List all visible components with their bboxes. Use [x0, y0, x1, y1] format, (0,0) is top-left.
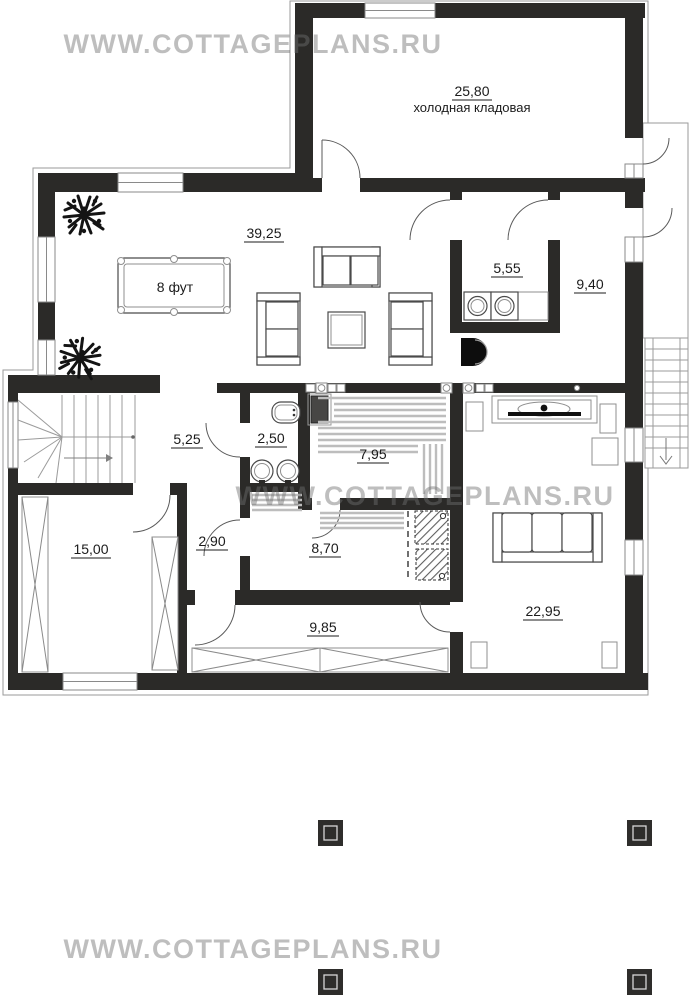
door-icon — [508, 200, 548, 240]
shower-tray — [416, 549, 448, 580]
window-icon — [365, 3, 435, 18]
sofa-left — [257, 293, 300, 365]
room-label-cold-storage-area: 25,80 — [454, 83, 489, 99]
room-label-laundry: 5,55 — [493, 260, 520, 276]
windows — [8, 3, 643, 690]
boiler-unit — [461, 338, 487, 366]
billiard-table-label: 8 фут — [157, 279, 194, 295]
room-label-corridor: 9,85 — [309, 619, 336, 635]
tv-console — [492, 396, 597, 423]
window-icon — [625, 237, 643, 262]
room-label-bathroom: 2,50 — [257, 430, 284, 446]
wardrobe — [320, 648, 448, 672]
door-icon — [420, 602, 450, 632]
shower-tray — [415, 511, 448, 544]
pillar-marker — [318, 969, 343, 995]
nightstand — [602, 642, 617, 668]
window-icon — [625, 164, 643, 178]
room-label-living-room: 39,25 — [246, 225, 281, 241]
nightstand — [600, 404, 616, 433]
window-icon — [118, 173, 183, 192]
bathtub — [272, 402, 300, 423]
plant-icon — [64, 196, 104, 234]
pillar-marker — [318, 820, 343, 846]
window-icon — [625, 540, 643, 575]
sofa-top — [314, 247, 380, 287]
pillar-marker — [627, 969, 652, 995]
sofa-right — [389, 293, 432, 365]
room-label-bedroom: 22,95 — [525, 603, 560, 619]
door-icon — [133, 495, 170, 532]
watermark-bottom: WWW.COTTAGEPLANS.RU — [64, 934, 443, 964]
room-label-sauna: 7,95 — [359, 446, 386, 462]
exterior-stairs — [645, 338, 688, 468]
room-label-boiler-room: 9,40 — [576, 276, 603, 292]
wardrobe — [192, 648, 320, 672]
door-icon — [206, 423, 240, 457]
room-label-shower-room: 8,70 — [311, 540, 338, 556]
pillar-marker — [627, 820, 652, 846]
room-label-hall: 2,90 — [198, 533, 225, 549]
nightstand — [471, 642, 487, 668]
bedroom-sofa — [493, 513, 602, 562]
side-table — [592, 438, 618, 465]
terrace — [643, 123, 688, 338]
floor-plan-page: 25,80 холодная кладовая 39,25 5,55 9,40 … — [0, 0, 689, 995]
wardrobe — [22, 497, 48, 672]
room-label-garage: 15,00 — [73, 541, 108, 557]
watermark-middle: WWW.COTTAGEPLANS.RU — [236, 481, 615, 511]
interior-stairs — [18, 395, 135, 483]
wardrobe — [152, 537, 178, 670]
window-icon — [38, 237, 55, 302]
window-icon — [8, 402, 18, 468]
floor-plan-drawing: 25,80 холодная кладовая 39,25 5,55 9,40 … — [0, 0, 689, 995]
window-icon — [625, 428, 643, 462]
nightstand — [466, 402, 483, 431]
washing-machines — [464, 292, 548, 320]
coffee-table — [328, 312, 365, 348]
window-icon — [38, 340, 55, 375]
door-icon — [410, 200, 450, 240]
stairs-up-arrow-icon — [64, 454, 113, 462]
room-label-entry-hall: 5,25 — [173, 431, 200, 447]
door-icon — [195, 605, 235, 645]
window-icon — [63, 673, 137, 690]
door-icon — [322, 140, 360, 178]
room-label-cold-storage-name: холодная кладовая — [413, 100, 530, 115]
watermark-top: WWW.COTTAGEPLANS.RU — [64, 29, 443, 59]
